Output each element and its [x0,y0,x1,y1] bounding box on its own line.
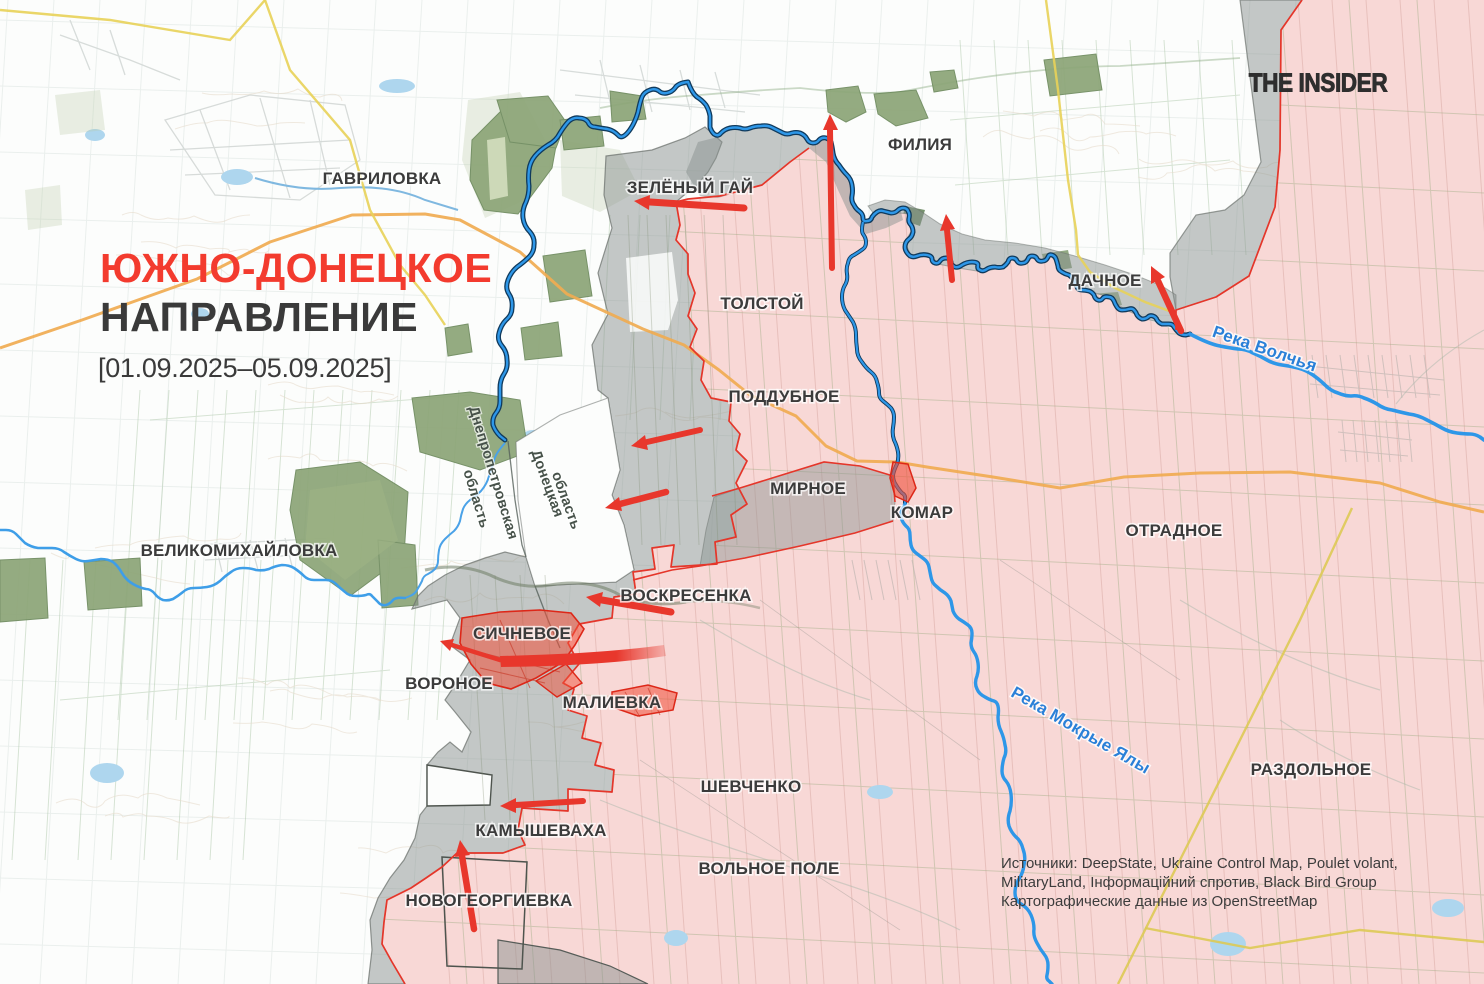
svg-text:НОВОГЕОРГИЕВКА: НОВОГЕОРГИЕВКА [405,891,572,910]
svg-text:ПОДДУБНОЕ: ПОДДУБНОЕ [728,387,839,406]
svg-text:ЮЖНО-ДОНЕЦКОЕ: ЮЖНО-ДОНЕЦКОЕ [100,245,492,291]
svg-text:THE INSIDER: THE INSIDER [1249,69,1388,98]
svg-text:ФИЛИЯ: ФИЛИЯ [888,135,952,154]
svg-text:ТОЛСТОЙ: ТОЛСТОЙ [720,294,803,313]
svg-text:[01.09.2025–05.09.2025]: [01.09.2025–05.09.2025] [98,353,391,383]
svg-text:ШЕВЧЕНКО: ШЕВЧЕНКО [701,777,802,796]
svg-text:РАЗДОЛЬНОЕ: РАЗДОЛЬНОЕ [1251,760,1372,779]
svg-text:СИЧНЕВОЕ: СИЧНЕВОЕ [473,624,571,643]
svg-text:Картографические данные из Ope: Картографические данные из OpenStreetMap [1001,893,1317,910]
svg-text:КАМЫШЕВАХА: КАМЫШЕВАХА [475,821,606,840]
svg-text:ГАВРИЛОВКА: ГАВРИЛОВКА [323,169,442,188]
svg-text:ВОСКРЕСЕНКА: ВОСКРЕСЕНКА [620,586,751,605]
svg-text:ЗЕЛЁНЫЙ ГАЙ: ЗЕЛЁНЫЙ ГАЙ [627,178,753,197]
svg-text:ВЕЛИКОМИХАЙЛОВКА: ВЕЛИКОМИХАЙЛОВКА [141,541,338,560]
svg-text:Источники: DeepState, Ukraine: Источники: DeepState, Ukraine Control Ma… [1001,855,1398,872]
svg-text:MilitaryLand, Інформаційний сп: MilitaryLand, Інформаційний спротив, Bla… [1001,874,1377,891]
svg-text:ВОЛЬНОЕ ПОЛЕ: ВОЛЬНОЕ ПОЛЕ [698,859,839,878]
svg-text:ДАЧНОЕ: ДАЧНОЕ [1068,271,1141,290]
svg-text:НАПРАВЛЕНИЕ: НАПРАВЛЕНИЕ [100,294,418,340]
svg-text:ВОРОНОЕ: ВОРОНОЕ [405,674,493,693]
svg-text:МАЛИЕВКА: МАЛИЕВКА [563,693,662,712]
svg-text:ОТРАДНОЕ: ОТРАДНОЕ [1126,521,1223,540]
svg-text:МИРНОЕ: МИРНОЕ [770,479,846,498]
svg-text:КОМАР: КОМАР [891,503,953,522]
